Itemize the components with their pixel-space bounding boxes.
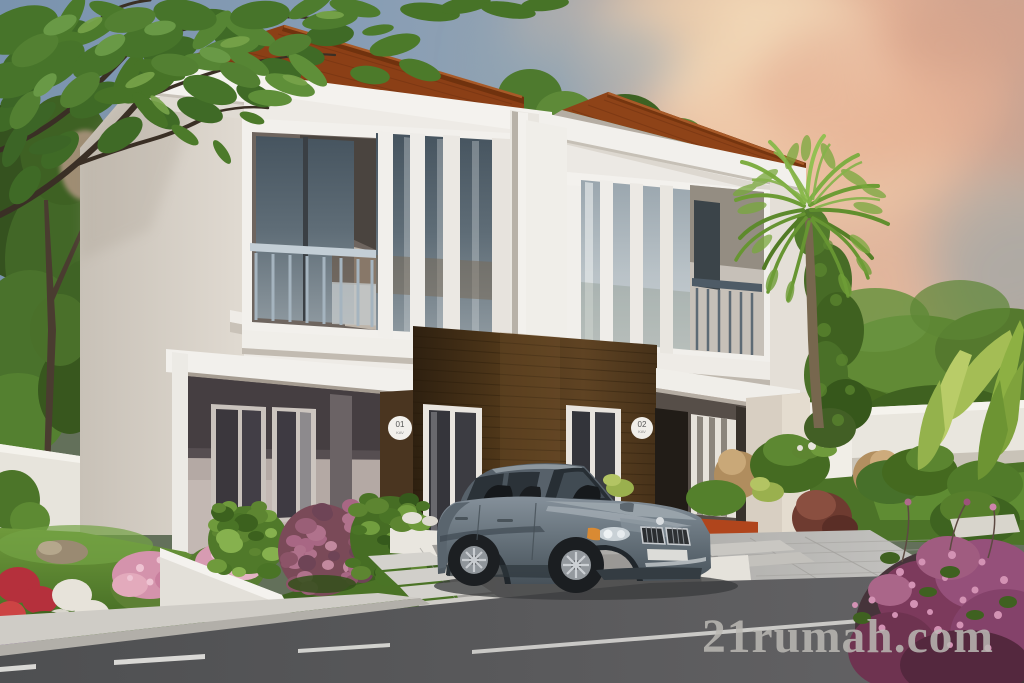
svg-text:02: 02 — [638, 420, 647, 429]
svg-text:KAV: KAV — [638, 429, 646, 434]
svg-text:01: 01 — [396, 420, 405, 429]
svg-text:KAV: KAV — [396, 430, 404, 435]
svg-text:21rumah.com: 21rumah.com — [702, 611, 994, 663]
